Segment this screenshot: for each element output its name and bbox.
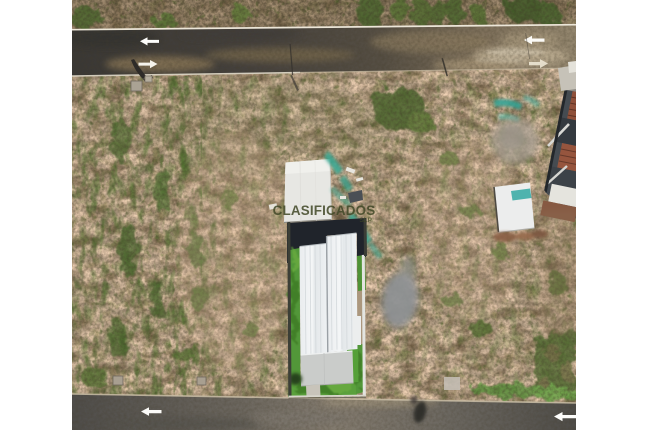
- svg-text:CLASIFICADOS: CLASIFICADOS: [273, 203, 376, 218]
- svg-text:SLP: SLP: [359, 217, 372, 224]
